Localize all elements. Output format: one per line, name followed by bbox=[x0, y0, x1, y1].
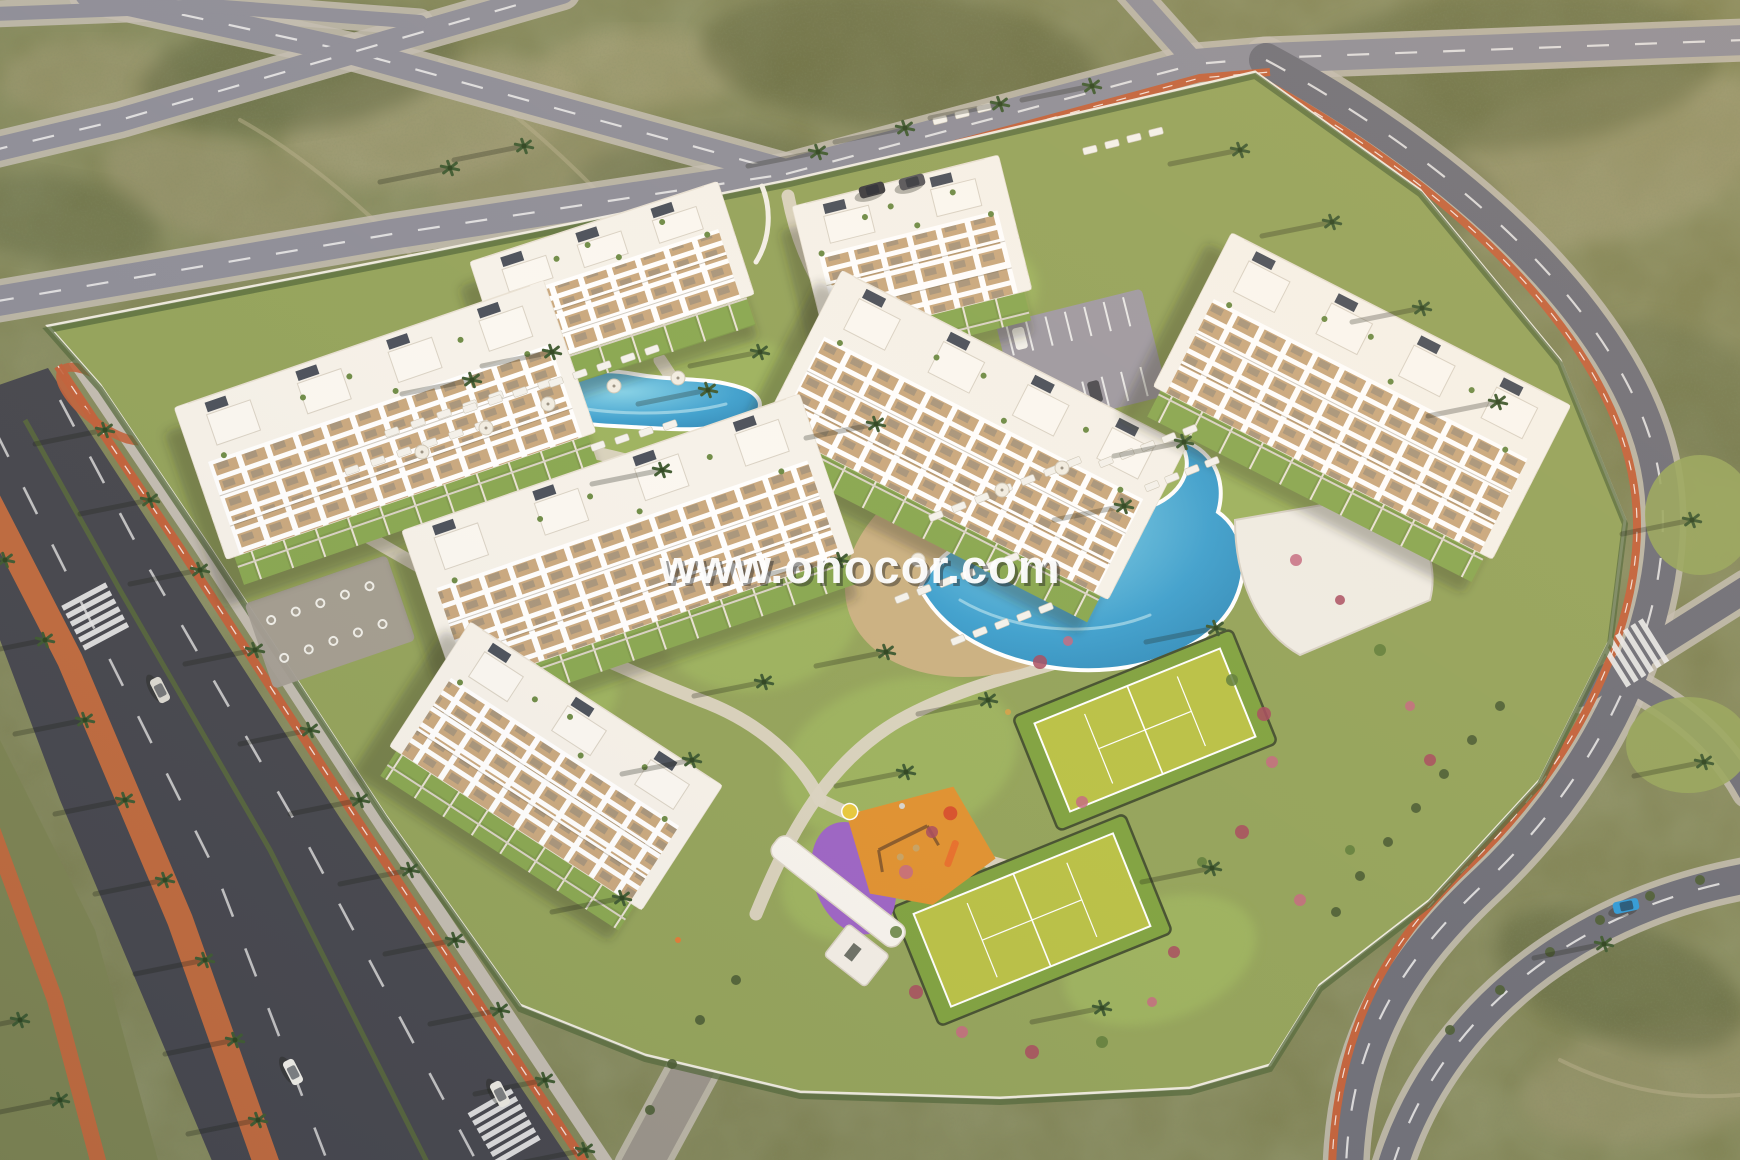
aerial-render-image: www.onocor.com www.onocor.com bbox=[0, 0, 1740, 1160]
watermark-text: www.onocor.com bbox=[658, 540, 1060, 593]
scene-canvas: www.onocor.com www.onocor.com bbox=[0, 0, 1740, 1160]
overlay-layer: www.onocor.com www.onocor.com bbox=[0, 0, 1740, 1160]
